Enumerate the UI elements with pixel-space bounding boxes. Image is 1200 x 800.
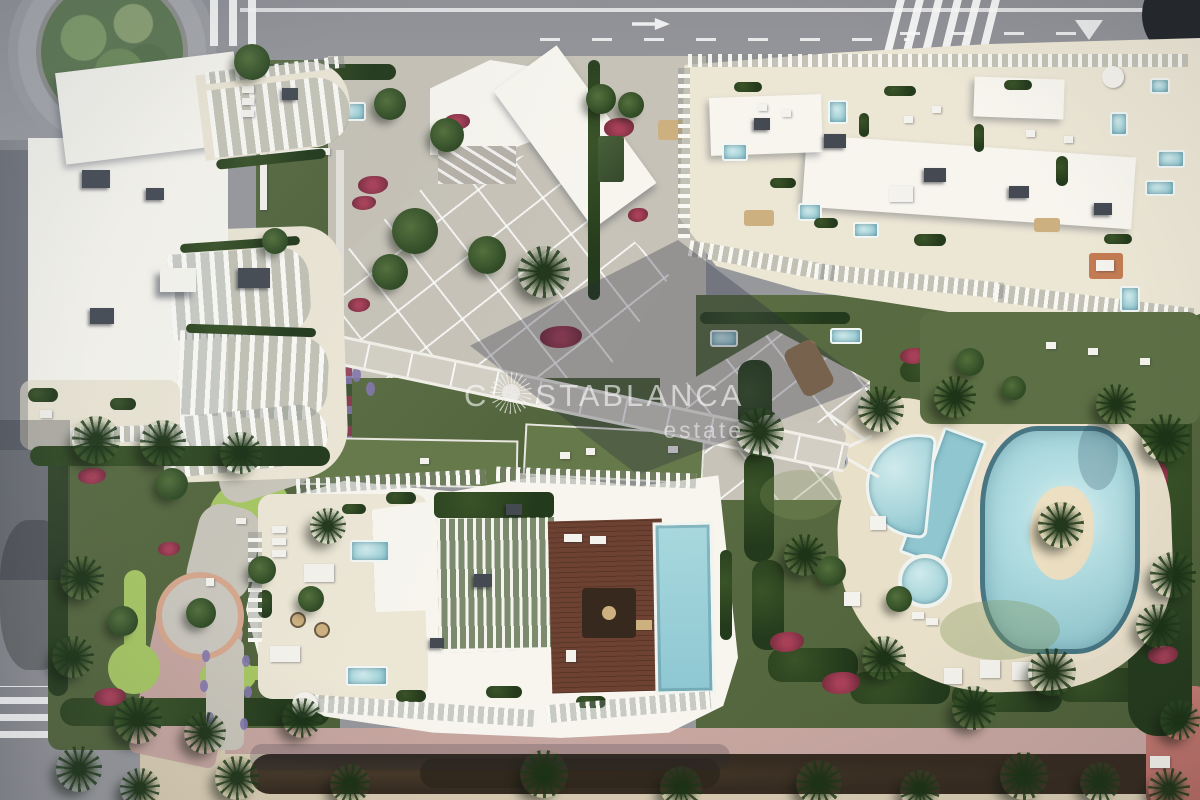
lounger <box>272 550 286 557</box>
cabana <box>980 660 1000 678</box>
jacuzzi <box>1150 78 1170 94</box>
palm-tree <box>184 712 226 754</box>
garden-furniture <box>1088 348 1098 355</box>
island-palm <box>1038 502 1084 548</box>
rooftop-unit <box>430 638 444 648</box>
rooftop-unit <box>82 170 110 188</box>
roof-furniture <box>1026 130 1035 137</box>
watermark-brand-prefix: C <box>464 380 489 411</box>
garden-furniture <box>420 458 429 464</box>
lounger <box>242 98 254 105</box>
garden-shed <box>598 136 624 182</box>
building-shadow <box>250 744 730 770</box>
balcony-railing <box>248 532 262 642</box>
tree <box>586 84 616 114</box>
palm-tree <box>220 432 262 474</box>
tree <box>618 92 644 118</box>
stop-line <box>240 8 1180 12</box>
bench <box>236 518 246 524</box>
sofa <box>1096 260 1114 271</box>
lounger <box>912 612 924 619</box>
rooftop-unit <box>924 168 946 182</box>
rooftop-unit <box>1009 186 1029 198</box>
palm-tree <box>310 508 346 544</box>
watermark-tagline: estate <box>464 417 746 444</box>
palm-tree <box>330 764 370 800</box>
palm-tree <box>1136 604 1180 648</box>
lavender <box>200 680 208 692</box>
tree <box>298 586 324 612</box>
palm-tree <box>72 416 120 464</box>
lounge-set <box>1034 218 1060 232</box>
tree <box>234 44 270 80</box>
lounger <box>242 110 254 117</box>
aerial-site-render: C STABLANCA estate <box>0 0 1200 800</box>
rooftop-unit <box>474 574 492 587</box>
tree <box>430 118 464 152</box>
roof-planter <box>1104 234 1132 244</box>
tree <box>372 254 408 290</box>
tree <box>248 556 276 584</box>
crosswalk <box>210 0 262 46</box>
spiral-stair <box>1102 66 1124 88</box>
deck-furniture <box>566 650 576 662</box>
dining-table <box>270 646 300 662</box>
building-shadow <box>0 420 70 580</box>
rooftop-unit <box>506 504 522 515</box>
terrace-table <box>282 88 298 100</box>
round-chair <box>314 622 330 638</box>
tree <box>468 236 506 274</box>
lounger <box>242 86 254 93</box>
garden-furniture <box>560 452 570 459</box>
bench <box>206 578 214 586</box>
tree <box>886 586 912 612</box>
garden-furniture <box>1046 342 1056 349</box>
palm-tree <box>140 420 186 466</box>
rooftop-unit <box>146 188 164 200</box>
lounger <box>272 526 286 533</box>
cabana <box>944 668 962 684</box>
roof-planter <box>734 82 762 92</box>
roof-furniture <box>758 104 767 111</box>
roof-furniture <box>904 116 913 123</box>
watermark-brand-suffix: STABLANCA <box>535 380 744 411</box>
palm-tree <box>1096 384 1136 424</box>
umbrella <box>844 592 860 606</box>
roof-planter <box>814 218 838 228</box>
roof-furniture <box>932 106 941 113</box>
palm-tree <box>60 556 104 600</box>
roof-planter <box>386 492 416 504</box>
dining-set <box>889 186 913 202</box>
deck-lounger <box>564 534 582 542</box>
roof-box <box>160 268 196 292</box>
garden-pool <box>1120 286 1140 312</box>
watermark: C STABLANCA estate <box>464 377 746 444</box>
rooftop-unit <box>754 118 770 130</box>
building-west <box>20 58 360 468</box>
roof-railing <box>678 68 690 238</box>
palm-tree <box>934 376 976 418</box>
palm-tree <box>114 696 162 744</box>
plunge-pool <box>828 100 848 124</box>
plaza-tree <box>186 598 216 628</box>
palm-tree <box>1142 414 1190 462</box>
palm-tree <box>520 750 568 798</box>
palm-tree <box>862 636 906 680</box>
roof-furniture <box>1064 136 1073 143</box>
palm-shadow-water <box>1078 420 1118 490</box>
palm-tree <box>56 746 102 792</box>
putting-green <box>108 642 160 694</box>
palm-tree <box>952 686 996 730</box>
dining-table <box>304 564 334 582</box>
tree <box>1002 376 1026 400</box>
tree <box>956 348 984 376</box>
palm-tree <box>796 760 842 800</box>
palm-tree <box>52 636 94 678</box>
palm-tree <box>1028 648 1076 696</box>
palm-tree <box>858 386 904 432</box>
plunge-pool <box>1145 180 1175 196</box>
tree <box>816 556 846 586</box>
deck-lounger <box>590 536 606 544</box>
plunge-pool <box>1110 112 1128 136</box>
plunge-pool <box>1157 150 1185 168</box>
roof-planter <box>720 550 732 640</box>
palm-tree <box>1150 552 1196 598</box>
roof-planter <box>486 686 522 698</box>
palm-tree <box>1000 752 1048 800</box>
roof-planter <box>1004 80 1032 90</box>
watermark-brand: C STABLANCA <box>464 377 746 414</box>
tree <box>392 208 438 254</box>
rooftop-unit <box>90 308 114 324</box>
rooftop-unit <box>824 134 846 148</box>
lounger <box>272 538 286 545</box>
lounger <box>926 618 938 625</box>
plunge-pool <box>350 540 390 562</box>
round-chair <box>290 612 306 628</box>
tree <box>374 88 406 120</box>
terrace-furniture <box>40 410 52 418</box>
terrace-planter <box>110 398 136 410</box>
roof-planter <box>1056 156 1068 186</box>
rooftop-unit <box>1094 203 1112 215</box>
umbrella <box>870 516 886 530</box>
palm-tree <box>660 766 702 800</box>
palm-tree <box>518 246 570 298</box>
tree <box>156 468 188 500</box>
roof-furniture <box>782 110 791 117</box>
rooftop-unit <box>238 268 270 288</box>
palm-tree <box>1080 762 1120 800</box>
roof-planter <box>770 178 796 188</box>
terrace-planter <box>28 388 58 402</box>
garden-furniture <box>1140 358 1150 365</box>
building-shadow <box>0 150 28 450</box>
lawn-highlight <box>760 470 840 520</box>
palm-tree <box>1160 700 1200 740</box>
lavender <box>366 382 375 396</box>
roof-planter <box>974 124 984 152</box>
sun-rays-icon <box>490 372 532 414</box>
lap-pool-roof <box>653 521 716 694</box>
tree <box>262 228 288 254</box>
roof-planter <box>859 113 869 137</box>
palm-tree <box>282 698 322 738</box>
roof-planter <box>434 492 554 518</box>
plunge-pool <box>853 222 879 238</box>
trellis <box>437 517 557 649</box>
neighbor-detail <box>1150 756 1170 768</box>
plunge-pool <box>722 143 748 161</box>
fire-pit <box>602 606 616 620</box>
palm-tree <box>215 756 259 800</box>
plunge-pool <box>346 666 388 686</box>
roof-planter <box>914 234 946 246</box>
garden-furniture <box>586 448 595 455</box>
lavender <box>202 650 210 662</box>
deck-furniture <box>636 620 652 630</box>
roof-planter <box>342 504 366 514</box>
lounge-set <box>744 210 774 226</box>
roof-planter <box>884 86 916 96</box>
palm-tree <box>120 768 160 800</box>
tree <box>108 606 138 636</box>
